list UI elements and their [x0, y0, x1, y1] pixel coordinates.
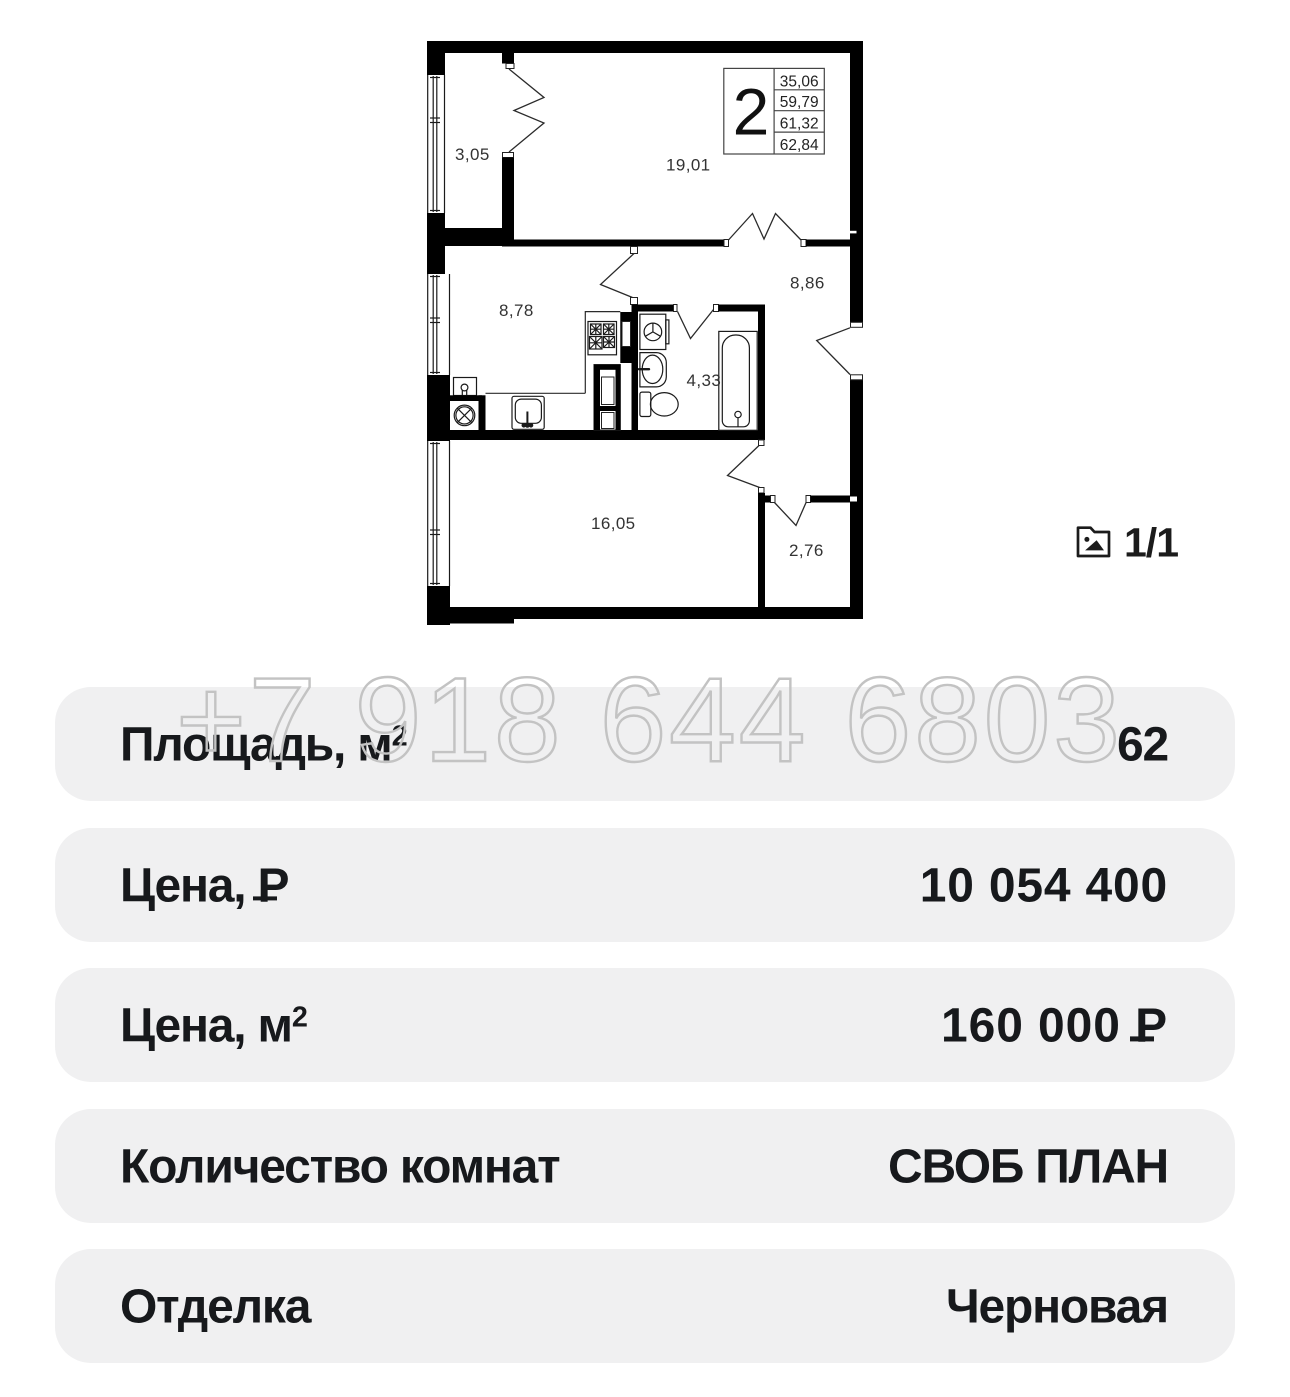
svg-text:16,05: 16,05	[591, 514, 636, 533]
svg-text:1/1: 1/1	[1124, 520, 1178, 566]
svg-text:19,01: 19,01	[666, 156, 711, 175]
svg-text:59,79: 59,79	[780, 94, 819, 111]
svg-text:2: 2	[733, 74, 770, 148]
svg-text:4,33: 4,33	[687, 371, 722, 390]
svg-text:35,06: 35,06	[780, 73, 819, 90]
svg-text:8,86: 8,86	[790, 274, 825, 293]
svg-text:8,78: 8,78	[499, 301, 534, 320]
svg-text:62,84: 62,84	[780, 137, 819, 154]
svg-text:2,76: 2,76	[789, 541, 824, 560]
svg-text:+7 918 644 6803: +7 918 644 6803	[176, 653, 1120, 787]
svg-text:61,32: 61,32	[780, 116, 819, 133]
svg-text:3,05: 3,05	[455, 145, 490, 164]
